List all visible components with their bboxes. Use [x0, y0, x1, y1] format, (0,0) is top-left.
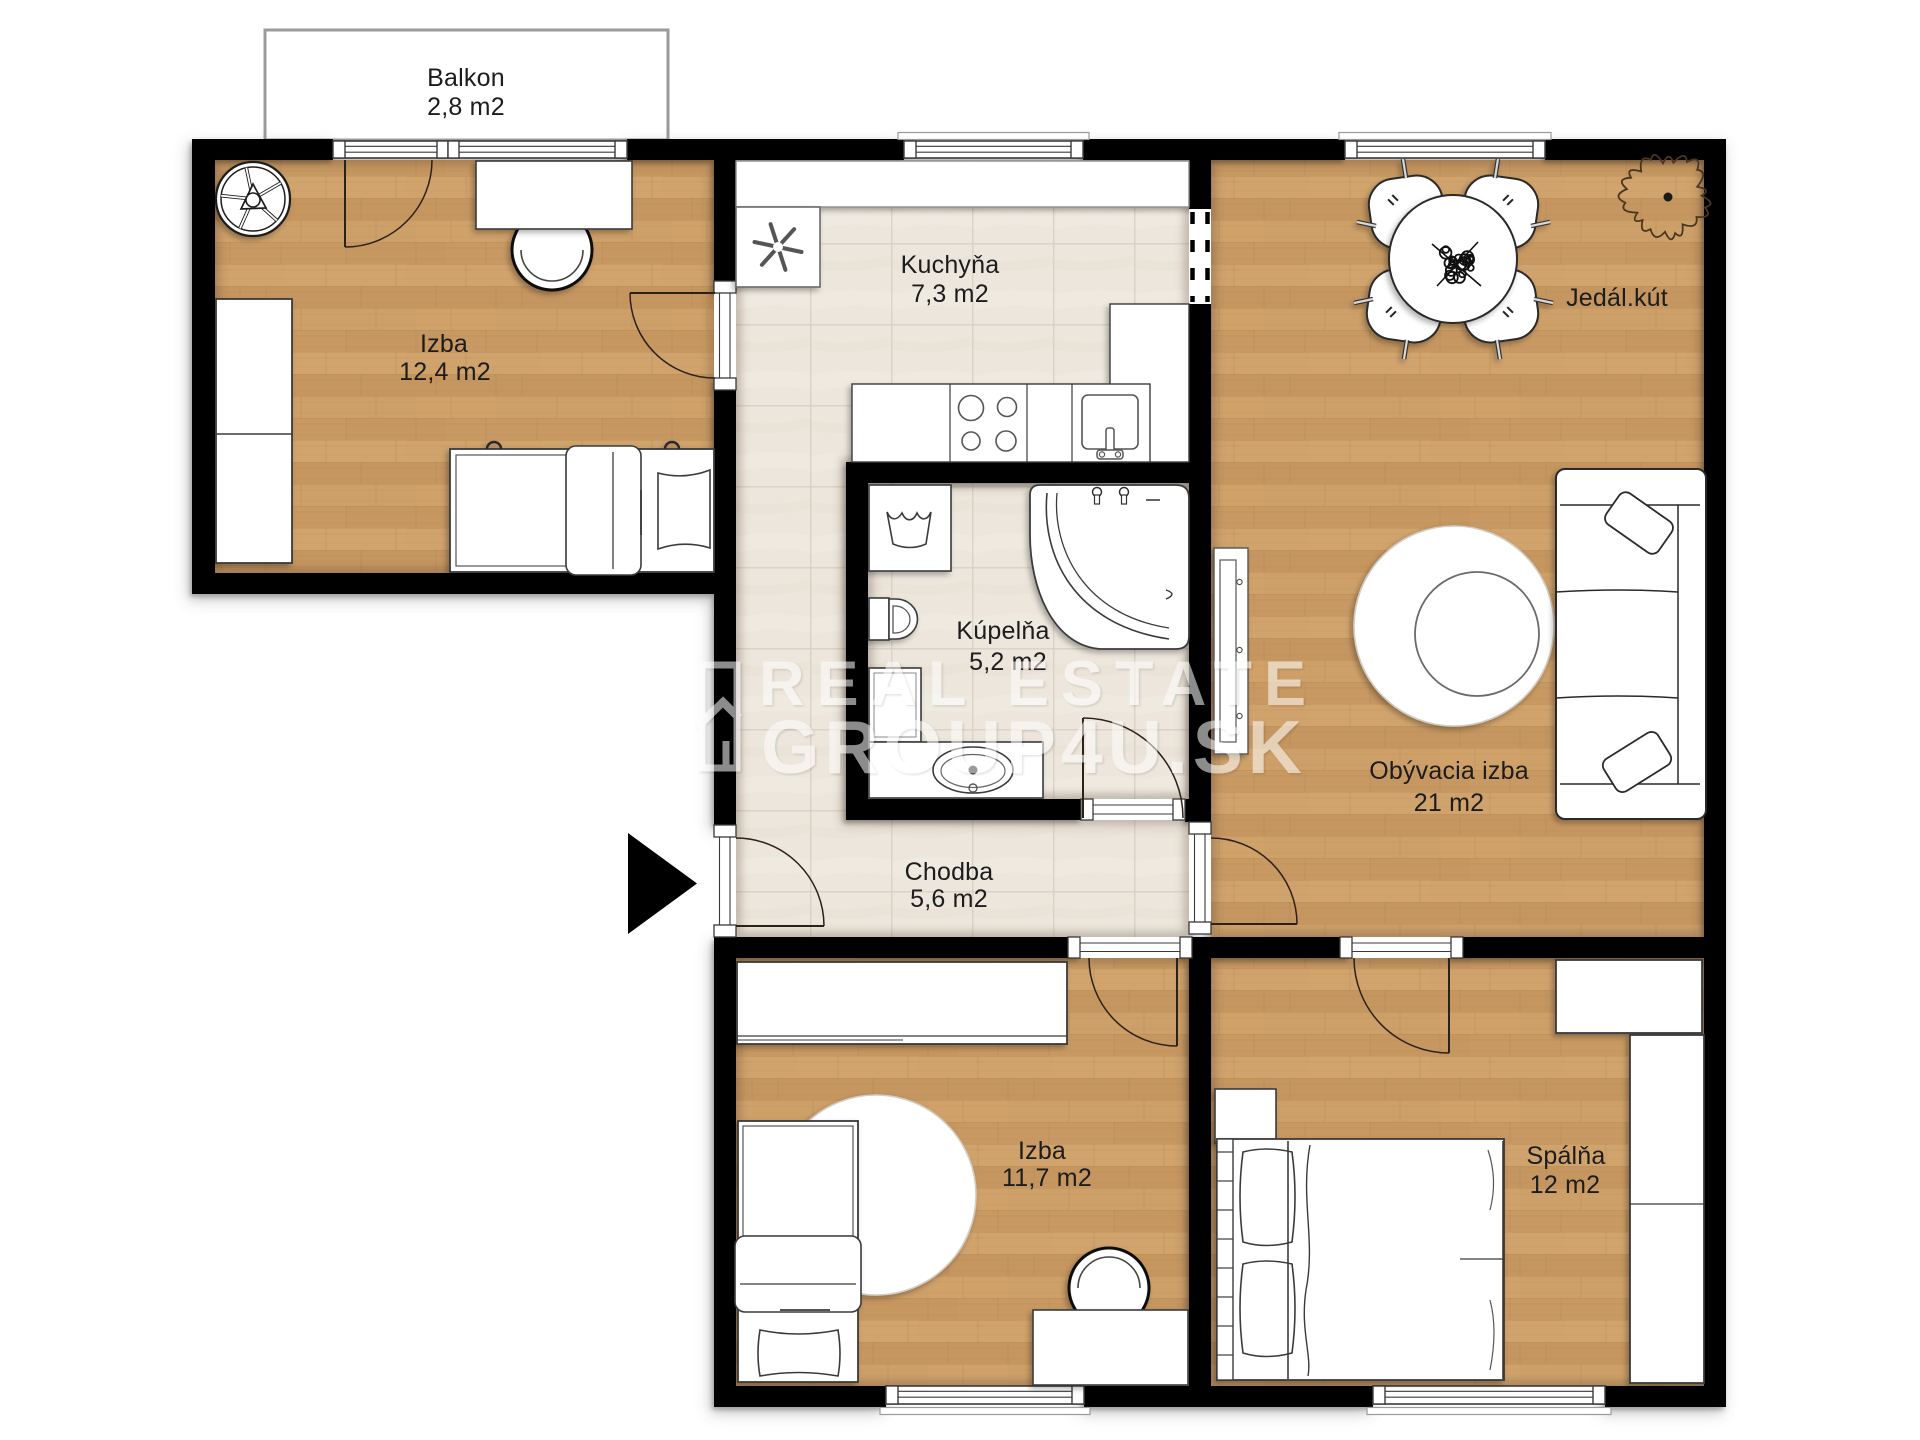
svg-text:11,7 m2: 11,7 m2	[1002, 1164, 1092, 1192]
svg-text:21 m2: 21 m2	[1414, 789, 1484, 817]
svg-text:Jedál.kút: Jedál.kút	[1566, 284, 1668, 312]
svg-text:Izba: Izba	[420, 330, 468, 358]
svg-text:Spálňa: Spálňa	[1526, 1142, 1605, 1170]
svg-text:Kuchyňa: Kuchyňa	[901, 251, 1000, 279]
svg-text:Obývacia izba: Obývacia izba	[1369, 757, 1529, 785]
svg-text:Kúpelňa: Kúpelňa	[956, 617, 1049, 645]
svg-text:GROUP4U.SK: GROUP4U.SK	[761, 705, 1307, 789]
svg-text:12 m2: 12 m2	[1530, 1171, 1600, 1199]
svg-text:Chodba: Chodba	[905, 858, 994, 886]
svg-text:2,8 m2: 2,8 m2	[427, 93, 505, 121]
svg-text:12,4 m2: 12,4 m2	[399, 358, 491, 386]
svg-text:5,6 m2: 5,6 m2	[910, 885, 988, 913]
svg-text:7,3 m2: 7,3 m2	[911, 280, 989, 308]
svg-text:Balkon: Balkon	[427, 64, 505, 92]
svg-text:Izba: Izba	[1018, 1137, 1066, 1165]
